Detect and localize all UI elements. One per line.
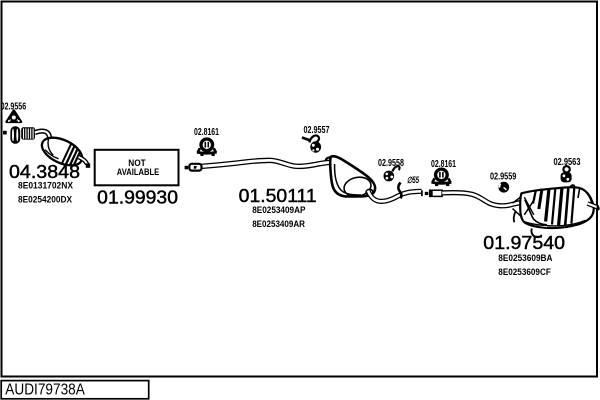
svg-text:8E0253409AR: 8E0253409AR bbox=[252, 219, 305, 230]
svg-text:8E0253609CF: 8E0253609CF bbox=[498, 267, 551, 278]
svg-text:8E0253609BA: 8E0253609BA bbox=[498, 253, 552, 264]
svg-text:∅55: ∅55 bbox=[407, 175, 419, 185]
svg-text:02.8161: 02.8161 bbox=[431, 159, 456, 170]
svg-text:02.9559: 02.9559 bbox=[490, 172, 516, 183]
svg-text:8E0254200DX: 8E0254200DX bbox=[18, 194, 73, 205]
svg-text:02.8161: 02.8161 bbox=[194, 127, 219, 138]
svg-text:8E0253409AP: 8E0253409AP bbox=[252, 205, 306, 216]
svg-text:01.50111: 01.50111 bbox=[239, 186, 317, 206]
svg-text:04.3848: 04.3848 bbox=[9, 162, 80, 182]
svg-text:01.99930: 01.99930 bbox=[97, 187, 178, 207]
svg-text:8E0131702NX: 8E0131702NX bbox=[18, 180, 74, 191]
svg-text:01.97540: 01.97540 bbox=[483, 233, 565, 253]
svg-text:02.9556: 02.9556 bbox=[1, 102, 27, 113]
svg-text:AUDI79738A: AUDI79738A bbox=[5, 382, 85, 399]
svg-text:AVAILABLE: AVAILABLE bbox=[117, 167, 160, 177]
